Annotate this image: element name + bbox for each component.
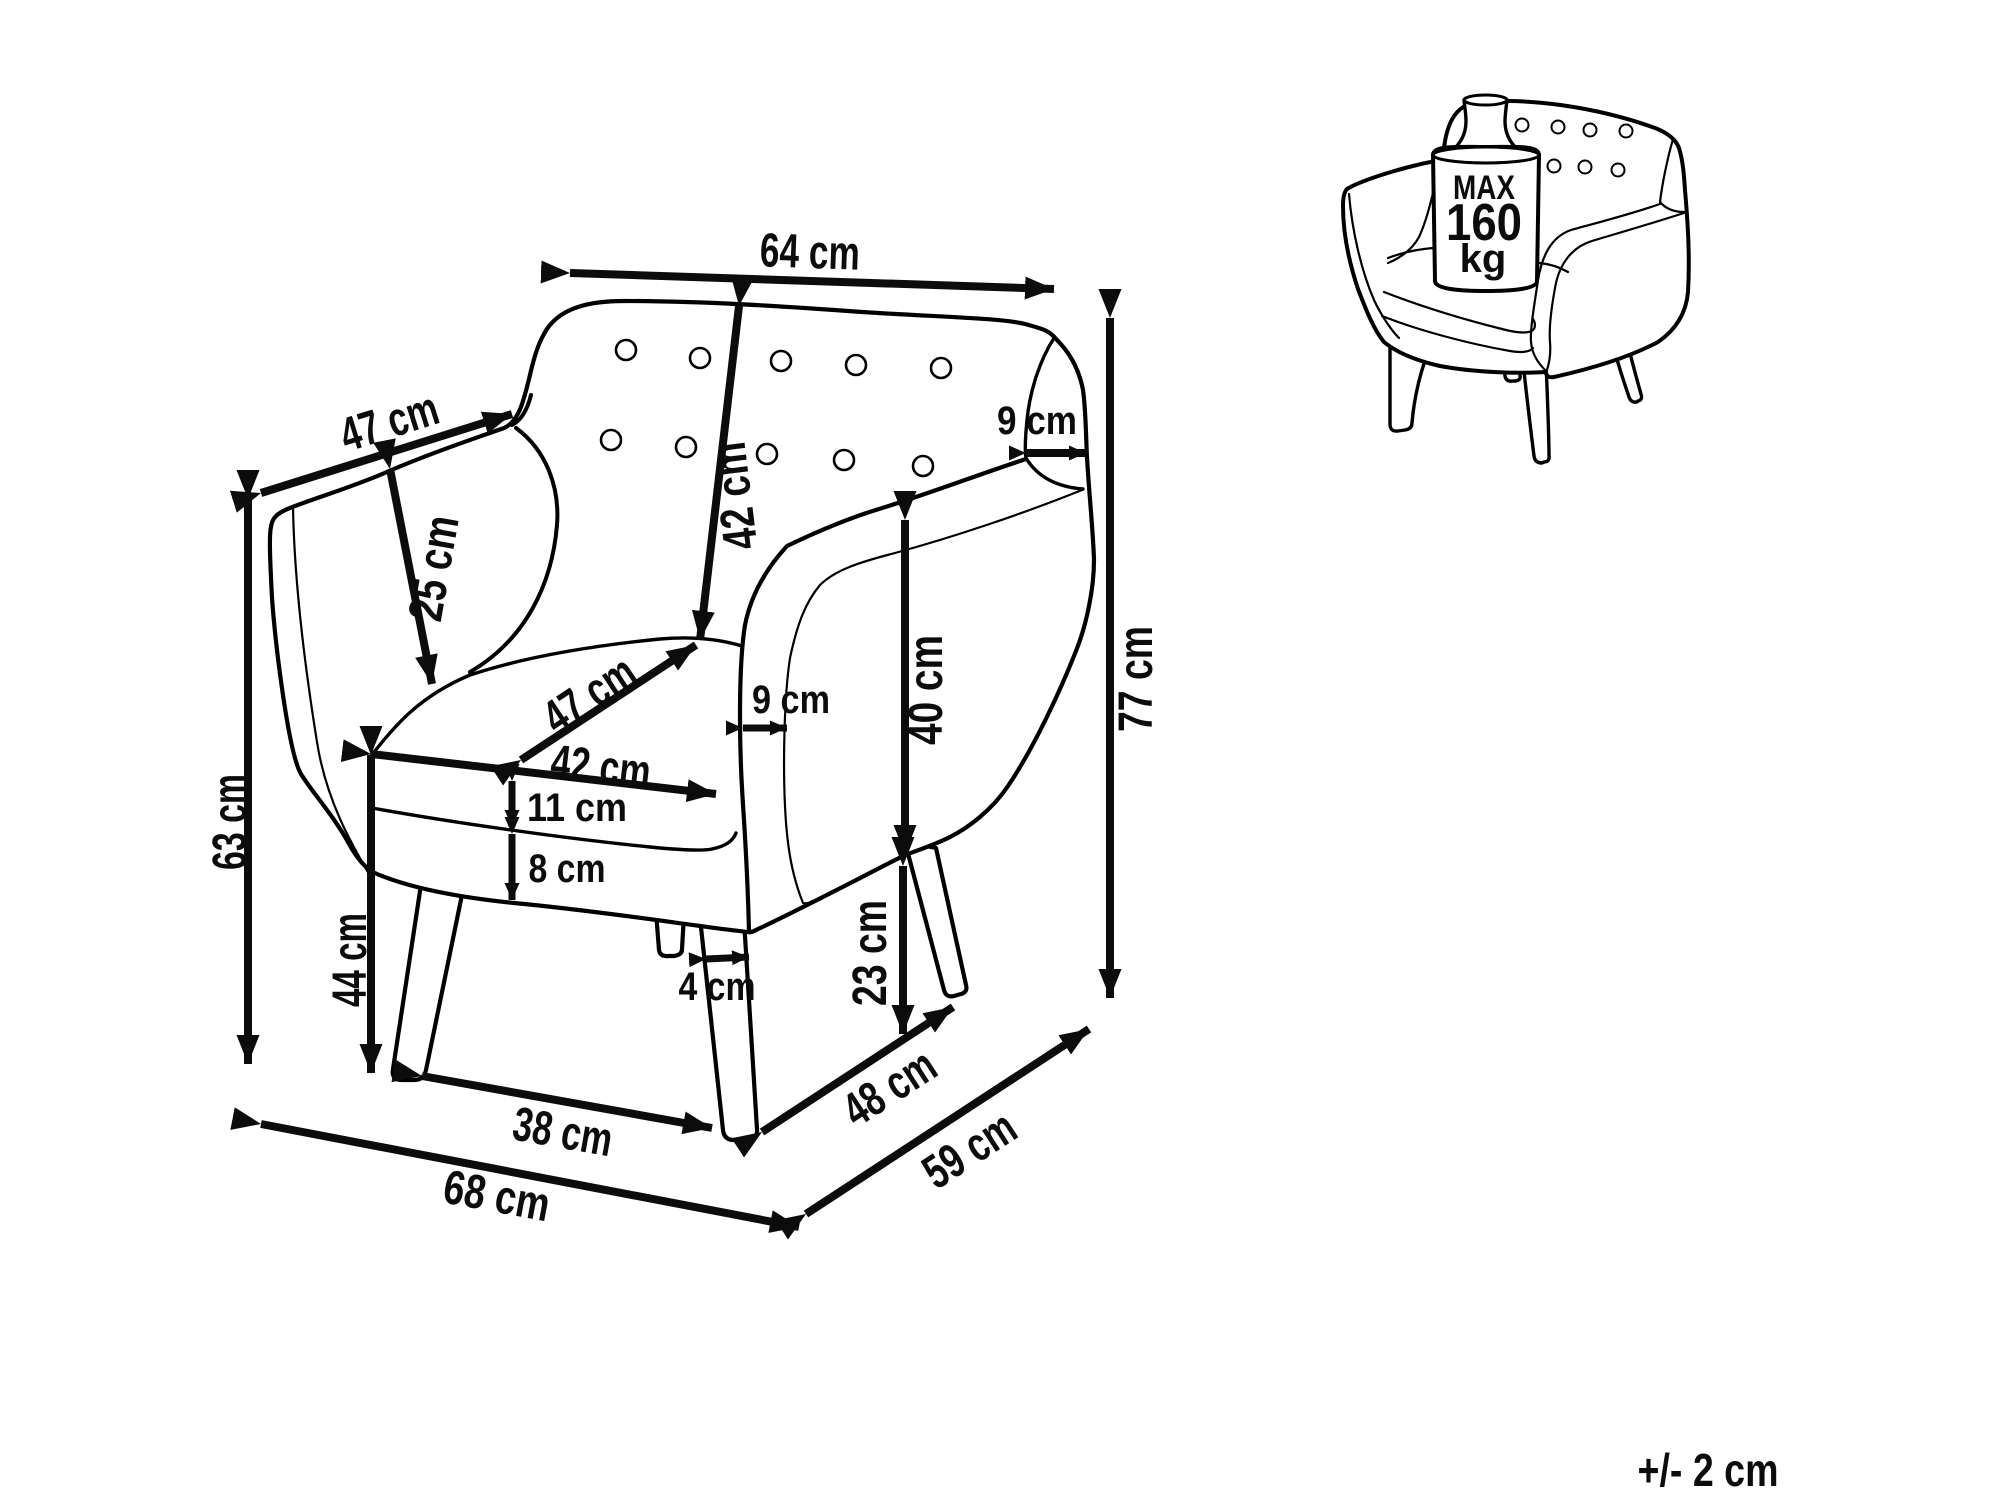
svg-text:23 cm: 23 cm — [844, 900, 897, 1006]
svg-text:4 cm: 4 cm — [679, 965, 756, 1009]
svg-text:64 cm: 64 cm — [759, 224, 861, 280]
svg-text:kg: kg — [1460, 237, 1507, 281]
svg-text:77 cm: 77 cm — [1110, 626, 1163, 732]
svg-text:11 cm: 11 cm — [527, 786, 627, 830]
svg-text:+/- 2 cm: +/- 2 cm — [1638, 1444, 1779, 1496]
svg-text:44 cm: 44 cm — [324, 913, 377, 1007]
svg-text:9 cm: 9 cm — [752, 678, 830, 722]
svg-text:9 cm: 9 cm — [997, 399, 1077, 443]
svg-text:63 cm: 63 cm — [204, 774, 257, 870]
svg-text:8 cm: 8 cm — [529, 847, 606, 891]
svg-text:40 cm: 40 cm — [900, 635, 953, 745]
